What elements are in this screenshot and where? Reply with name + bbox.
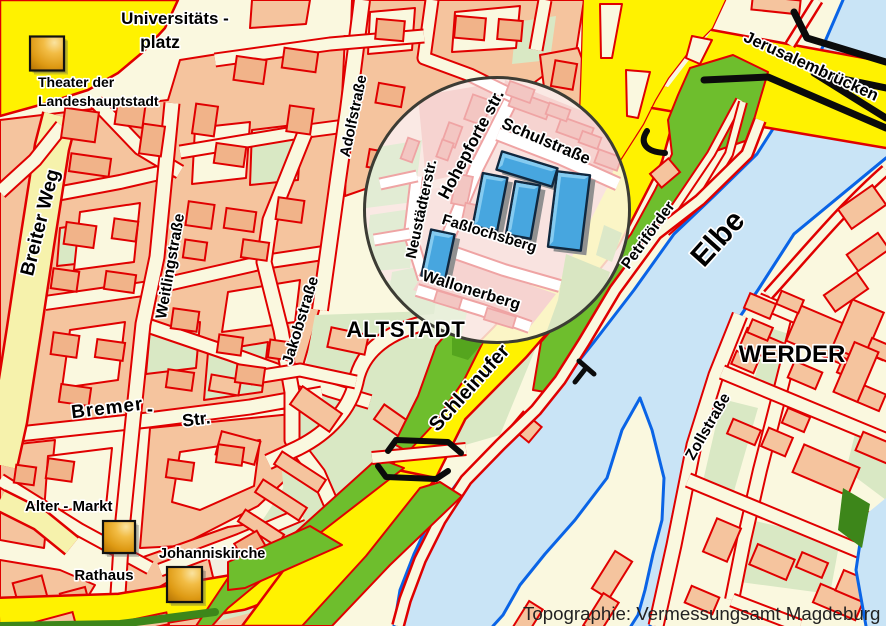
- svg-text:Theater der: Theater der: [38, 74, 115, 90]
- svg-text:Rathaus: Rathaus: [74, 567, 133, 584]
- svg-text:Landeshauptstadt: Landeshauptstadt: [38, 93, 159, 109]
- svg-text:Alter - Markt: Alter - Markt: [25, 498, 113, 515]
- svg-text:WERDER: WERDER: [739, 341, 846, 368]
- svg-text:Johanniskirche: Johanniskirche: [159, 546, 265, 562]
- svg-text:platz: platz: [140, 32, 180, 52]
- svg-text:Topographie: Vermessungsamt Ma: Topographie: Vermessungsamt Magdeburg: [523, 603, 880, 624]
- svg-text:Str.: Str.: [181, 407, 211, 430]
- svg-text:-: -: [147, 399, 153, 419]
- svg-text:Universitäts -: Universitäts -: [121, 9, 229, 28]
- svg-text:ALTSTADT: ALTSTADT: [346, 317, 465, 342]
